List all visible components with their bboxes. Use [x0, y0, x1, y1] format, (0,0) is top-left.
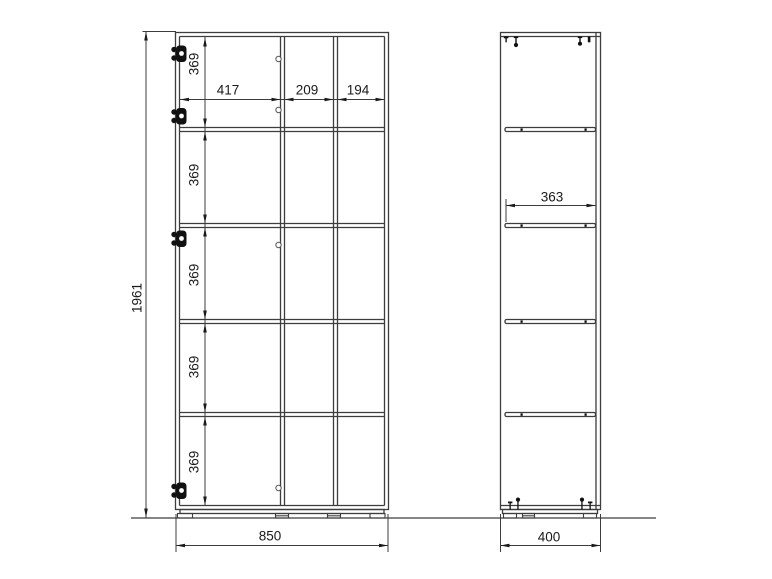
cabinet-dimension-drawing [0, 0, 772, 579]
mounting-bolt-icon [588, 37, 591, 43]
dim-label-shelf-depth: 363 [541, 190, 564, 204]
front-plinth [180, 510, 384, 514]
hole-icon [276, 485, 281, 490]
dim-label-row-5: 369 [187, 451, 201, 474]
foot-icon [584, 514, 597, 519]
side-plinth [503, 510, 598, 514]
hole-icon [276, 56, 281, 61]
dim-label-row-1: 369 [187, 53, 201, 76]
mounting-bolt-icon [514, 37, 518, 48]
front-feet [178, 514, 386, 519]
foot-icon [178, 514, 193, 519]
dim-label-column-2: 209 [296, 83, 319, 97]
hinge-icon [171, 231, 186, 248]
mounting-bolt-icon [504, 37, 509, 43]
hole-icon [276, 107, 281, 112]
hole-icon [276, 242, 281, 247]
dim-label-overall-width: 850 [259, 529, 282, 543]
shelf-pin-icon [585, 224, 587, 226]
shelf-pin-icon [585, 413, 587, 415]
shelf-pin-icon [521, 320, 523, 322]
mounting-bolt-icon [578, 37, 582, 46]
side-bottom-bolts [508, 498, 592, 510]
dim-label-row-2: 369 [187, 164, 201, 187]
dimension-lines [143, 32, 601, 553]
shelf-pin-icon [585, 320, 587, 322]
hinge-icon [171, 108, 186, 125]
foot-icon [370, 514, 385, 519]
dimension-arrowheads [144, 32, 600, 548]
side-view-drawing [501, 33, 601, 514]
hinge-icon [171, 46, 186, 63]
shelf-pins [521, 128, 587, 415]
technical-drawing-page: 1961 369 369 369 369 369 417 209 194 850… [0, 0, 772, 579]
foot-icon [504, 514, 517, 519]
side-feet [504, 514, 597, 519]
mounting-bolt-icon [580, 498, 584, 510]
shelf-pin-icon [521, 224, 523, 226]
shelf-pin-icon [521, 413, 523, 415]
shelf-pin-icon [585, 128, 587, 130]
dim-label-column-1: 417 [217, 83, 240, 97]
dim-label-overall-depth: 400 [538, 530, 561, 544]
dim-label-row-4: 369 [187, 356, 201, 379]
side-top-bolts [504, 37, 591, 48]
hinge-icon [171, 483, 186, 500]
mounting-bolt-icon [516, 498, 520, 510]
front-view-drawing [176, 33, 389, 514]
dim-label-overall-height: 1961 [130, 283, 144, 313]
dim-label-column-3: 194 [347, 83, 370, 97]
shelf-pin-icon [521, 128, 523, 130]
dim-label-row-3: 369 [187, 264, 201, 287]
